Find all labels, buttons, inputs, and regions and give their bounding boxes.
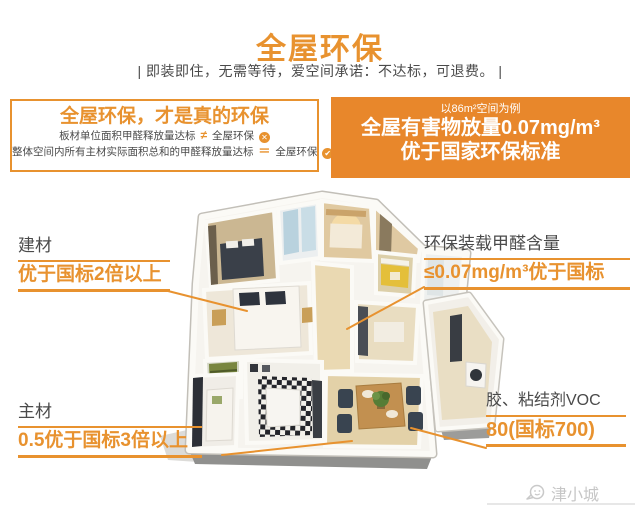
hallway bbox=[313, 263, 352, 372]
callout-title: 胶、粘结剂VOC bbox=[486, 391, 626, 411]
callout-divider bbox=[18, 260, 170, 262]
balcony-top-center bbox=[278, 202, 320, 263]
callout-title: 建材 bbox=[18, 236, 170, 256]
callout-glue-voc: 胶、粘结剂VOC 80(国标700) bbox=[486, 391, 626, 447]
callout-value: 80(国标700) bbox=[486, 419, 626, 441]
callout-underline bbox=[486, 444, 626, 447]
chat-face-icon bbox=[526, 484, 546, 502]
callout-building-materials: 建材 优于国标2倍以上 bbox=[18, 236, 170, 292]
callout-value: 优于国标2倍以上 bbox=[18, 264, 170, 286]
callout-underline bbox=[18, 455, 202, 458]
master-bedroom bbox=[204, 283, 313, 359]
callout-divider bbox=[424, 258, 630, 260]
callout-divider bbox=[486, 415, 626, 417]
callout-value: ≤0.07mg/m³优于国标 bbox=[424, 262, 630, 284]
callout-underline bbox=[18, 289, 170, 292]
study-room-yellow-desk bbox=[376, 252, 415, 296]
kitchen bbox=[245, 360, 322, 443]
promo-poster: 全屋环保 | 即装即住，无需等待，爱空间承诺：不达标，可退费。 | 全屋环保，才… bbox=[0, 0, 640, 518]
callout-title: 环保装载甲醛含量 bbox=[424, 234, 630, 254]
callout-value: 0.5优于国标3倍以上 bbox=[18, 430, 202, 452]
watermark-divider bbox=[487, 503, 635, 505]
bedroom-top-right bbox=[322, 201, 374, 261]
bedroom-top-left bbox=[206, 210, 278, 287]
dining-living-room bbox=[325, 374, 423, 447]
watermark-label: 津小城 bbox=[551, 481, 599, 505]
callout-main-materials: 主材 0.5优于国标3倍以上 bbox=[18, 402, 202, 458]
callout-title: 主材 bbox=[18, 402, 202, 422]
work-room-right bbox=[356, 302, 418, 363]
watermark: 津小城 bbox=[526, 481, 599, 505]
callout-divider bbox=[18, 426, 202, 428]
callout-formaldehyde: 环保装载甲醛含量 ≤0.07mg/m³优于国标 bbox=[424, 234, 630, 290]
callout-underline bbox=[424, 287, 630, 290]
